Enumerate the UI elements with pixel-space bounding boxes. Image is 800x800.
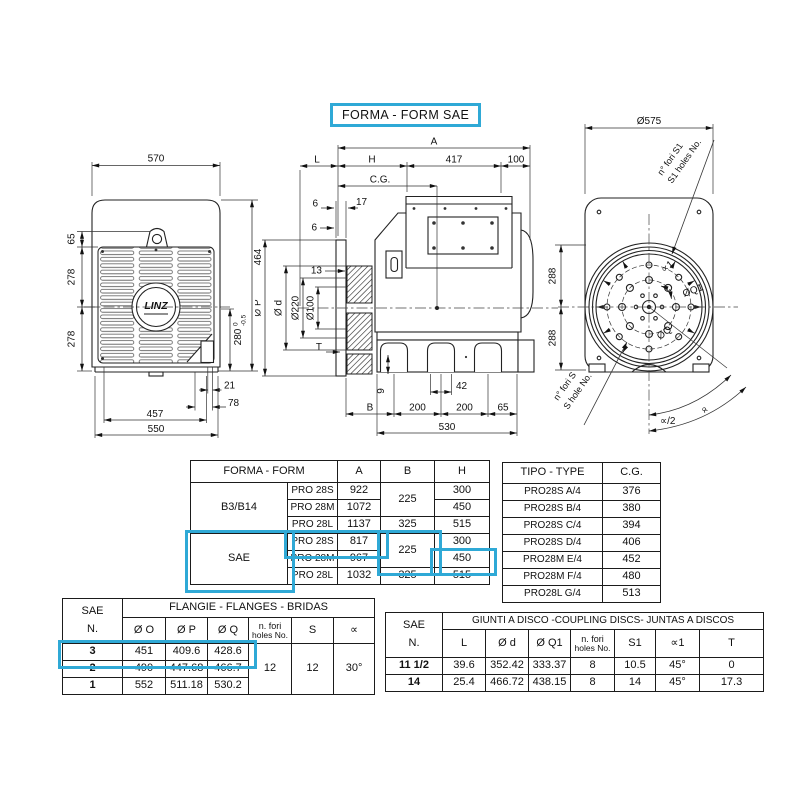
- disc-col-s1: S1: [615, 630, 656, 658]
- label-alpha: ∝: [698, 404, 711, 417]
- flange-fori-line2: holes No.: [249, 631, 291, 640]
- disc-col-t: T: [700, 630, 764, 658]
- table-cell: 8: [571, 658, 615, 675]
- dim-cg: C.G.: [370, 175, 391, 186]
- disc-fori-line2: holes No.: [571, 644, 614, 653]
- table-cell: 1032: [338, 568, 381, 585]
- dim-288-lower: 288: [548, 329, 559, 346]
- table-cell: 406: [603, 535, 661, 552]
- flange-sae-header: SAE N.: [63, 599, 123, 644]
- flange-col-s: S: [292, 618, 334, 644]
- page-title: FORMA - FORM SAE: [330, 103, 481, 127]
- forma-col-h: H: [435, 461, 490, 483]
- disc-col-q1: Ø Q1: [529, 630, 571, 658]
- flange-col-alpha: ∝: [334, 618, 375, 644]
- table-cell: 922: [338, 483, 381, 500]
- forma-col-a: A: [338, 461, 381, 483]
- label-alpha-half: ∝/2: [660, 416, 676, 427]
- table-cell: 14: [615, 675, 656, 692]
- table-cell: 480: [603, 569, 661, 586]
- table-cell: PRO28S C/4: [503, 518, 603, 535]
- table-cell: 300: [435, 534, 490, 551]
- disc-sae-label: SAE: [386, 617, 442, 635]
- dim-200b: 200: [456, 403, 473, 414]
- table-cell: 409.6: [166, 644, 208, 661]
- dim-13: 13: [311, 266, 323, 277]
- tipo-type-table: TIPO - TYPE C.G. PRO28S A/4376 PRO28S B/…: [502, 462, 661, 603]
- forma-form-table: FORMA - FORM A B H B3/B14 PRO 28S 922 22…: [190, 460, 490, 585]
- flange-sae-label: SAE: [63, 603, 122, 621]
- table-cell: 466.72: [486, 675, 529, 692]
- table-cell: 490: [123, 661, 166, 678]
- dim-dP: Ø P: [255, 299, 264, 317]
- table-cell: 45°: [656, 675, 700, 692]
- table-cell: 450: [435, 551, 490, 568]
- side-view-drawing: A L H 417 100 C.G. 6 17 6 13 T Ø100 Ø220…: [255, 130, 565, 445]
- table-cell: PRO28M F/4: [503, 569, 603, 586]
- table-cell: 39.6: [443, 658, 486, 675]
- table-cell: 2: [63, 661, 123, 678]
- forma-header-title: FORMA - FORM: [191, 461, 338, 483]
- dim-417: 417: [446, 155, 463, 166]
- dim-d575: Ø575: [637, 116, 662, 127]
- dim-550: 550: [148, 424, 165, 435]
- table-cell: PRO 28L: [288, 517, 338, 534]
- table-cell: PRO28L G/4: [503, 586, 603, 603]
- dim-100: 100: [508, 155, 525, 166]
- flanges-table: SAE N. FLANGIE - FLANGES - BRIDAS Ø O Ø …: [62, 598, 375, 695]
- table-cell: 0: [700, 658, 764, 675]
- dim-570: 570: [148, 154, 165, 165]
- table-cell: PRO 28S: [288, 534, 338, 551]
- table-cell: 450: [435, 500, 490, 517]
- table-cell: 515: [435, 568, 490, 585]
- table-cell: 394: [603, 518, 661, 535]
- table-cell: 515: [435, 517, 490, 534]
- form-group-b3b14: B3/B14: [191, 483, 288, 534]
- dim-d220: Ø220: [291, 295, 302, 320]
- logo-text: LINZ: [144, 300, 168, 312]
- flange-col-p: Ø P: [166, 618, 208, 644]
- table-cell: 17.3: [700, 675, 764, 692]
- dim-78: 78: [228, 398, 240, 409]
- table-cell: PRO 28M: [288, 551, 338, 568]
- dim-6a: 6: [312, 199, 318, 210]
- table-cell: PRO28S A/4: [503, 484, 603, 501]
- dim-L: L: [314, 155, 320, 166]
- table-cell: 325: [381, 517, 435, 534]
- table-cell: 325: [381, 568, 435, 585]
- dim-280-tol-hi: 0: [233, 322, 240, 326]
- dim-278-lower: 278: [67, 330, 78, 347]
- coupling-disc: [347, 313, 372, 350]
- table-cell: 12: [292, 644, 334, 695]
- table-cell: 967: [338, 551, 381, 568]
- table-cell: PRO28M E/4: [503, 552, 603, 569]
- datasheet-page: FORMA - FORM SAE LINZ: [0, 0, 800, 800]
- disc-col-l: L: [443, 630, 486, 658]
- dim-6b: 6: [311, 223, 317, 234]
- table-cell: PRO28S B/4: [503, 501, 603, 518]
- dim-280-tol-lo: -0.5: [241, 314, 248, 326]
- coupling-disc: [347, 354, 372, 374]
- table-cell: PRO 28S: [288, 483, 338, 500]
- table-cell: 447.68: [166, 661, 208, 678]
- table-cell: 352.42: [486, 658, 529, 675]
- disc-sae-header: SAE N.: [386, 613, 443, 658]
- coupling-disc: [347, 266, 372, 303]
- flange-n-label: N.: [63, 621, 122, 639]
- end-view-drawing: n° fori S1 S1 holes No. n° fori S S hole…: [545, 105, 795, 450]
- table-cell: 225: [381, 483, 435, 517]
- dim-530: 530: [439, 422, 456, 433]
- table-cell: 530.2: [208, 678, 249, 695]
- table-cell: 10.5: [615, 658, 656, 675]
- table-cell: 817: [338, 534, 381, 551]
- disc-title: GIUNTI A DISCO -COUPLING DISCS- JUNTAS A…: [443, 613, 764, 630]
- table-cell: 452: [603, 552, 661, 569]
- dim-457: 457: [147, 409, 164, 420]
- form-group-sae: SAE: [191, 534, 288, 585]
- table-cell: PRO 28L: [288, 568, 338, 585]
- dim-T: T: [316, 342, 322, 353]
- flange-col-o: Ø O: [123, 618, 166, 644]
- dim-A: A: [431, 137, 438, 148]
- flange-col-fori: n. fori holes No.: [249, 618, 292, 644]
- dim-42: 42: [456, 381, 468, 392]
- table-cell: 8: [571, 675, 615, 692]
- table-cell: 3: [63, 644, 123, 661]
- dim-dd: Ø d: [274, 300, 285, 316]
- table-cell: 225: [381, 534, 435, 568]
- flange-col-q: Ø Q: [208, 618, 249, 644]
- table-cell: 300: [435, 483, 490, 500]
- table-cell: 376: [603, 484, 661, 501]
- dim-H: H: [368, 155, 375, 166]
- table-cell: 11 1/2: [386, 658, 443, 675]
- disc-col-alpha1: ∝1: [656, 630, 700, 658]
- table-cell: 428.6: [208, 644, 249, 661]
- table-cell: 333.37: [529, 658, 571, 675]
- table-cell: PRO 28M: [288, 500, 338, 517]
- dim-278-upper: 278: [67, 268, 78, 285]
- flange-title: FLANGIE - FLANGES - BRIDAS: [123, 599, 375, 618]
- dim-21: 21: [224, 381, 236, 392]
- disc-col-fori: n. fori holes No.: [571, 630, 615, 658]
- table-cell: 451: [123, 644, 166, 661]
- table-cell: 380: [603, 501, 661, 518]
- table-cell: 12: [249, 644, 292, 695]
- table-cell: 30°: [334, 644, 375, 695]
- disc-n-label: N.: [386, 635, 442, 653]
- tipo-cg-header: C.G.: [603, 463, 661, 484]
- dim-B: B: [367, 403, 374, 414]
- table-cell: 1137: [338, 517, 381, 534]
- dim-65: 65: [67, 233, 78, 245]
- table-cell: 14: [386, 675, 443, 692]
- dim-17: 17: [356, 197, 368, 208]
- dim-d100: Ø100: [306, 295, 317, 320]
- dim-200a: 200: [409, 403, 426, 414]
- table-cell: 513: [603, 586, 661, 603]
- table-cell: PRO28S D/4: [503, 535, 603, 552]
- dim-280: 280: [233, 328, 244, 345]
- table-cell: 25.4: [443, 675, 486, 692]
- table-cell: 438.15: [529, 675, 571, 692]
- table-cell: 466.7: [208, 661, 249, 678]
- dim-9: 9: [376, 388, 387, 394]
- table-cell: 45°: [656, 658, 700, 675]
- coupling-discs-table: SAE N. GIUNTI A DISCO -COUPLING DISCS- J…: [385, 612, 764, 692]
- table-cell: 1: [63, 678, 123, 695]
- table-cell: 552: [123, 678, 166, 695]
- dim-65b: 65: [497, 403, 509, 414]
- tipo-header: TIPO - TYPE: [503, 463, 603, 484]
- disc-col-d: Ø d: [486, 630, 529, 658]
- table-cell: 1072: [338, 500, 381, 517]
- table-cell: 511.18: [166, 678, 208, 695]
- forma-col-b: B: [381, 461, 435, 483]
- dim-288-upper: 288: [548, 267, 559, 284]
